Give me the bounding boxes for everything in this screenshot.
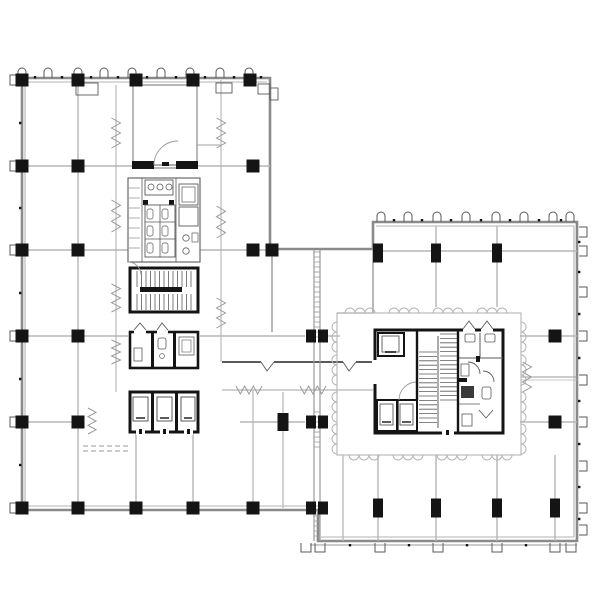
right-core [372,321,503,436]
building-outline [22,78,577,545]
exterior-wall [22,78,577,541]
floor-plan [0,0,607,600]
core [375,330,503,433]
floor-plan-canvas [0,0,607,600]
elevator-bank [130,392,198,432]
